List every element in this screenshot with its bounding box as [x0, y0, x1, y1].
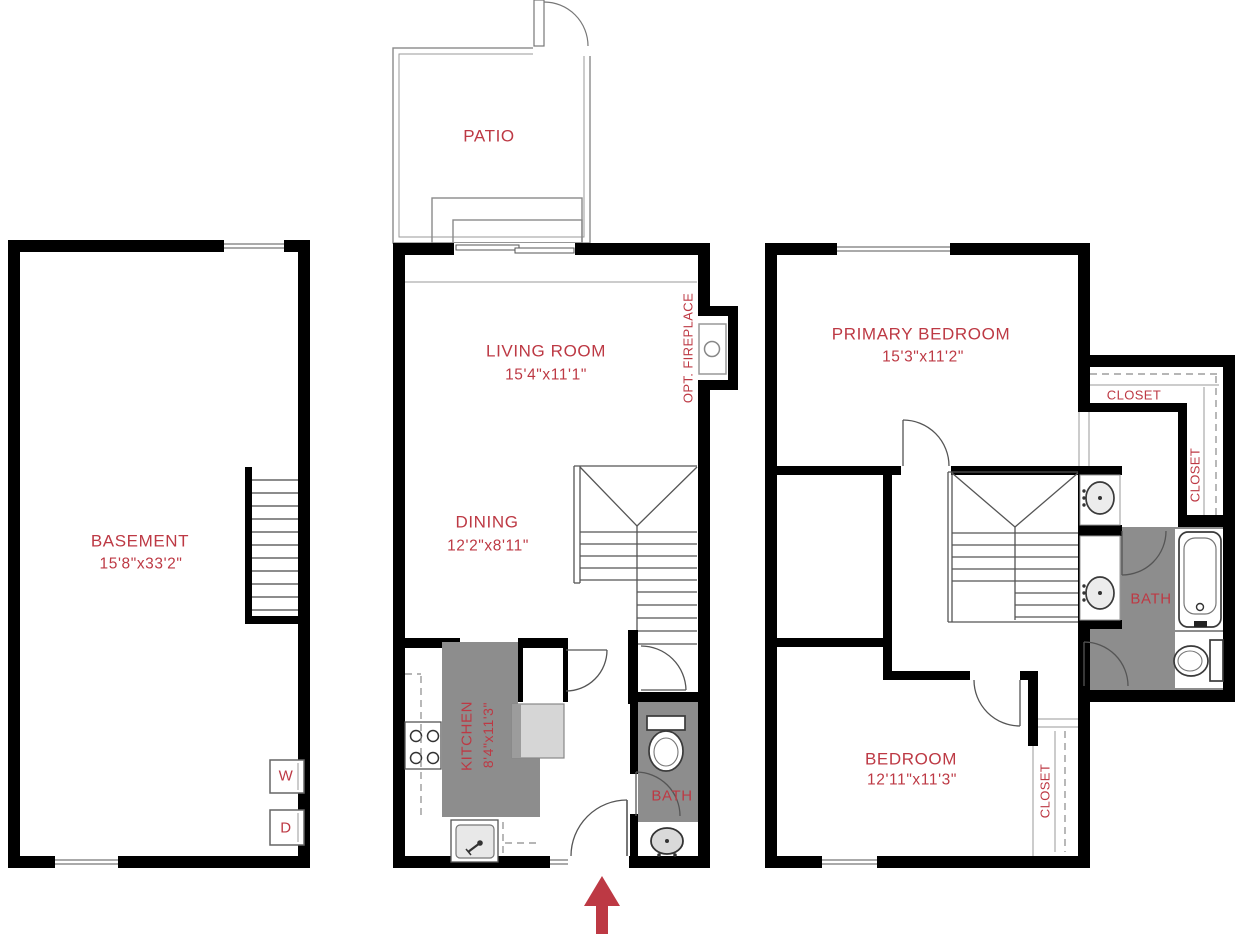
washer-label: W: [279, 769, 294, 784]
kitchen-sink-icon: [451, 820, 498, 862]
basement-window-icon: [55, 856, 118, 868]
upper-window-icon: [837, 243, 950, 255]
primary-bedroom-dims: 15'3"x11'2": [882, 349, 964, 365]
toilet-icon: [647, 716, 685, 771]
stove-icon: [405, 722, 441, 769]
basement-label: BASEMENT: [91, 533, 189, 550]
toilet-icon: [1174, 632, 1223, 688]
fireplace-icon: [696, 306, 738, 390]
dining-label: DINING: [455, 514, 518, 531]
living-room-label: LIVING ROOM: [486, 343, 606, 360]
kitchen-label: KITCHEN: [460, 701, 475, 771]
fireplace-label: OPT. FIREPLACE: [682, 293, 695, 403]
main-bath-label: BATH: [651, 789, 692, 804]
patio-door-icon: [534, 0, 588, 46]
bathtub-icon: [1175, 529, 1223, 630]
vanity-sink-icon: [1080, 536, 1120, 620]
primary-closet-side-label: CLOSET: [1189, 448, 1202, 502]
primary-closet-label: CLOSET: [1107, 389, 1161, 402]
vanity-sink-icon: [1080, 475, 1120, 525]
sliding-door-icon: [454, 243, 575, 255]
kitchen-dims: 8'4"x11'3": [481, 702, 495, 768]
main-bath-area: [636, 702, 698, 857]
primary-bedroom-label: PRIMARY BEDROOM: [832, 326, 1010, 343]
bedroom-closet-label: CLOSET: [1039, 764, 1052, 818]
basement-dims: 15'8"x33'2": [100, 556, 183, 572]
upper-bath-label: BATH: [1130, 592, 1171, 607]
basement-plan: [8, 240, 310, 868]
patio-label: PATIO: [463, 128, 515, 145]
floor-plan-drawing: [0, 0, 1241, 934]
bedroom-dims: 12'11"x11'3": [867, 772, 957, 788]
dining-dims: 12'2"x8'11": [447, 538, 529, 554]
dryer-label: D: [280, 821, 291, 836]
basement-window-icon: [224, 240, 284, 252]
fridge-icon: [512, 704, 564, 758]
floor-plan-page: BASEMENT 15'8"x33'2" W D PATIO LIVING RO…: [0, 0, 1241, 934]
bedroom-label: BEDROOM: [865, 751, 957, 768]
entry-arrow: [584, 876, 620, 934]
living-room-dims: 15'4"x11'1": [505, 367, 587, 383]
patio-outline: [393, 0, 591, 243]
upper-window-icon: [822, 856, 877, 868]
